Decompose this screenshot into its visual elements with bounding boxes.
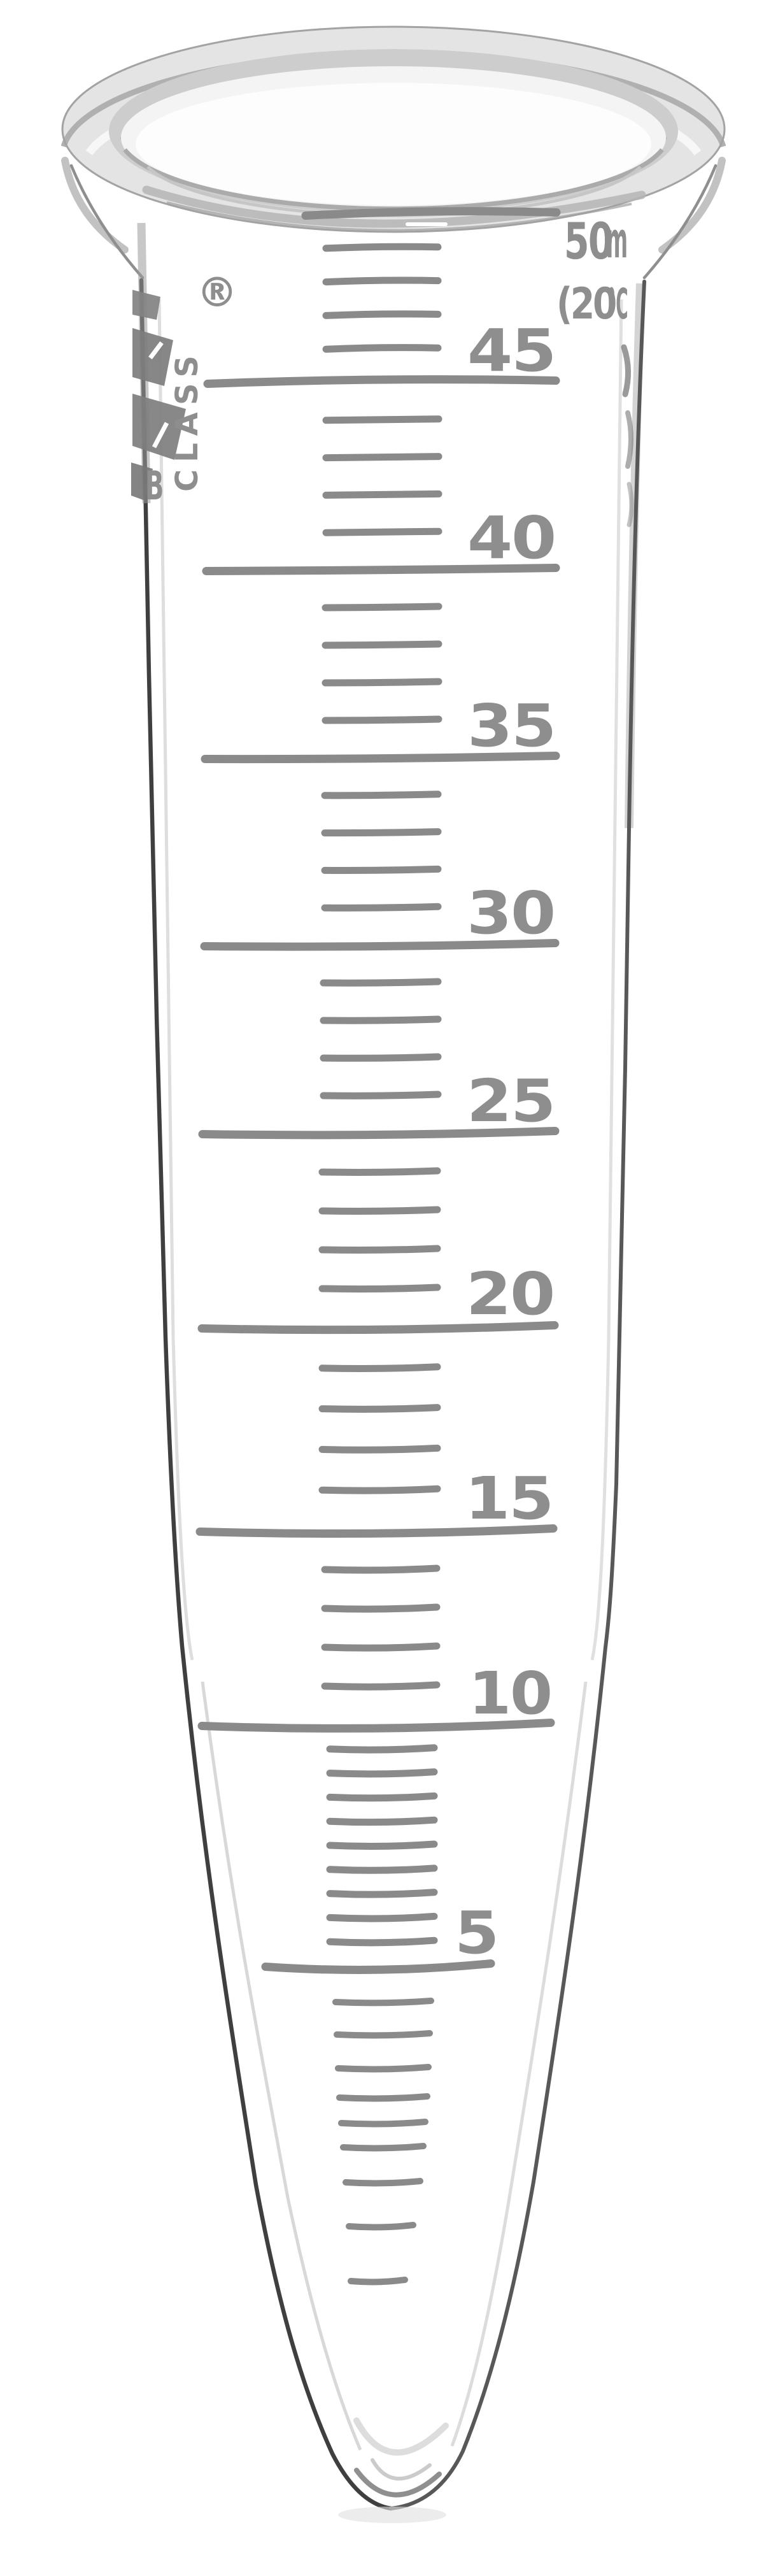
graduation-minor-tick xyxy=(325,1607,437,1609)
graduation-minor-tick xyxy=(323,982,438,983)
graduation-minor-tick xyxy=(330,1916,434,1919)
graduation-minor-tick xyxy=(322,1210,437,1212)
graduation-minor-tick xyxy=(330,1820,434,1822)
graduation-minor-tick xyxy=(322,1448,437,1450)
graduation-minor-tick xyxy=(325,606,439,608)
graduation-minor-tick xyxy=(325,1568,437,1570)
edge-letter-b: B xyxy=(145,464,164,510)
graduation-minor-tick xyxy=(323,1094,438,1096)
graduation-tip-tick xyxy=(346,2181,420,2184)
graduation-label-30: 30 xyxy=(467,879,555,947)
graduation-minor-tick xyxy=(330,1893,434,1895)
temperature-label: (20 xyxy=(556,279,616,329)
edge-smudge-2 xyxy=(628,413,631,466)
graduation-minor-tick xyxy=(322,1249,437,1250)
graduation-minor-tick xyxy=(323,1019,438,1020)
glass-left-edge xyxy=(141,280,391,2508)
mouth-inner-core xyxy=(136,83,651,205)
graduation-minor-tick xyxy=(326,348,438,350)
graduation-minor-tick xyxy=(325,1646,437,1648)
graduation-label-35: 35 xyxy=(467,692,555,760)
graduation-minor-tick xyxy=(330,1844,434,1846)
graduation-label-10: 10 xyxy=(469,1659,551,1728)
graduation-label-25: 25 xyxy=(467,1067,555,1135)
graduation-labels: 5045403530252015105 xyxy=(455,213,612,1967)
graduation-minor-tick xyxy=(326,314,438,316)
graduation-minor-tick xyxy=(330,1772,434,1774)
graduation-minor-tick xyxy=(325,1685,437,1687)
graduation-minor-tick xyxy=(325,644,439,645)
graduation-minor-tick xyxy=(326,531,439,533)
registered-symbol: ® xyxy=(197,269,237,317)
tube-body xyxy=(141,280,644,2523)
graduation-minor-tick xyxy=(322,1408,437,1410)
inner-wall-left xyxy=(159,299,192,1660)
printed-markings: CLASS ® 50 m (20 °C xyxy=(169,211,632,525)
product-photo-stage: B CLASS ® 50 m (20 °C 504540353025201510… xyxy=(0,0,764,2576)
inner-wall-cone-right xyxy=(452,1682,586,2446)
graduation-minor-tick xyxy=(330,1868,434,1871)
graduation-minor-tick xyxy=(325,682,439,683)
graduation-minor-tick xyxy=(323,1057,438,1058)
graduation-minor-tick xyxy=(326,419,439,420)
graduation-minor-tick xyxy=(325,832,438,833)
graduation-label-50: 50 xyxy=(564,213,612,271)
graduation-minor-tick xyxy=(326,494,439,495)
graduation-tip-tick xyxy=(339,2096,427,2098)
graduation-minor-tick xyxy=(325,869,438,870)
temperature-wrapped-fragment: °C xyxy=(607,279,628,328)
graduation-minor-tick xyxy=(330,1796,434,1798)
graduation-tip-tick xyxy=(338,2067,428,2069)
graduation-minor-tick xyxy=(325,719,439,720)
tip-inner-arc xyxy=(372,2460,430,2479)
graduation-minor-tick xyxy=(325,906,438,908)
graduation-minor-tick xyxy=(326,247,438,248)
graduation-label-40: 40 xyxy=(467,504,555,572)
graduation-minor-tick xyxy=(322,1367,437,1369)
tip-glass-thickness xyxy=(357,2470,439,2495)
edge-smudge-1 xyxy=(624,347,628,394)
centrifuge-tube-illustration: B CLASS ® 50 m (20 °C 504540353025201510… xyxy=(0,0,764,2576)
graduation-minor-tick xyxy=(322,1171,437,1172)
graduation-tip-tick xyxy=(336,2001,431,2003)
graduation-label-5: 5 xyxy=(455,1899,498,1967)
graduation-minor-tick xyxy=(322,1489,437,1491)
graduation-minor-tick xyxy=(330,1748,434,1750)
graduation-tip-tick xyxy=(343,2146,423,2149)
graduation-minor-tick xyxy=(325,794,438,796)
graduation-minor-tick xyxy=(330,1940,434,1943)
tip-shadow xyxy=(338,2507,446,2523)
graduation-minor-tick xyxy=(326,280,438,282)
graduation-major-line-50 xyxy=(306,211,556,216)
tip-reflection-arc xyxy=(357,2421,446,2452)
graduation-tip-tick xyxy=(341,2122,425,2124)
graduation-minor-tick xyxy=(322,1287,437,1289)
edge-smudge-3 xyxy=(629,484,632,525)
graduation-label-15: 15 xyxy=(465,1464,553,1533)
graduation-label-45: 45 xyxy=(467,317,555,385)
graduation-minor-tick xyxy=(326,457,439,458)
class-marking: CLASS xyxy=(169,348,205,492)
graduation-tip-tick xyxy=(337,2033,430,2035)
graduation-tip-tick xyxy=(351,2280,405,2282)
graduation-label-20: 20 xyxy=(466,1260,554,1328)
logo-wrap-fragment-1 xyxy=(132,290,160,320)
graduation-tip-tick xyxy=(349,2225,413,2228)
